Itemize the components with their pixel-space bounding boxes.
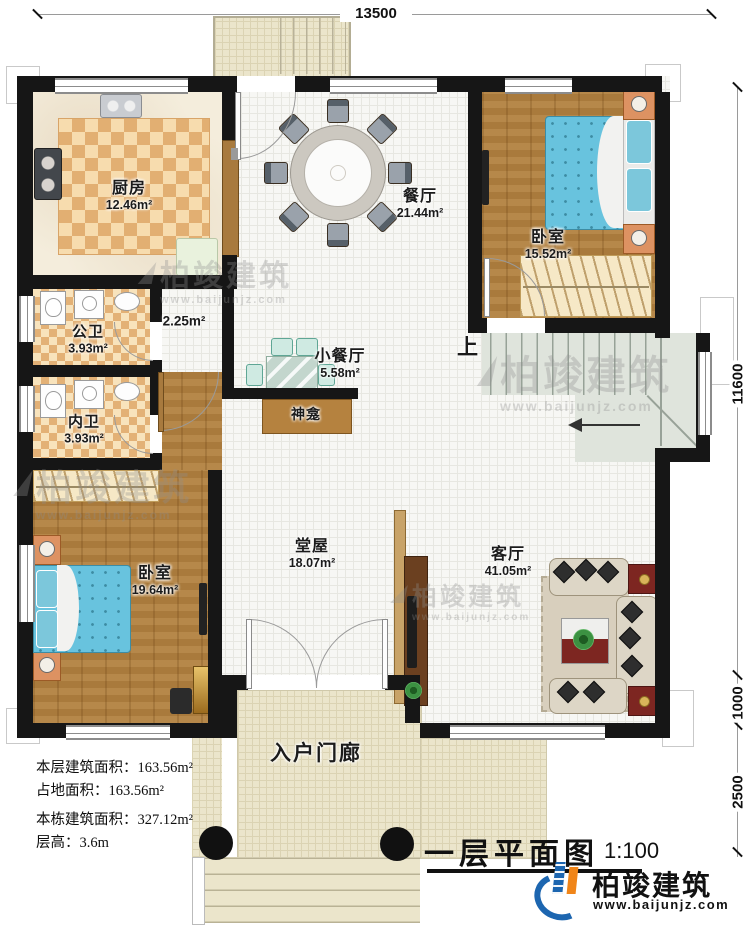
tv-bedroom-top [482, 150, 489, 205]
stair-window [698, 352, 712, 435]
info-land-area: 占地面积：163.56m² [36, 779, 164, 800]
dining-chair [388, 162, 412, 184]
stair-divider-line [660, 336, 662, 446]
wall-dining-bedroom-divider [468, 92, 482, 333]
public-bath-name: 公卫 [68, 325, 108, 342]
kitchen-cabinet [176, 238, 218, 276]
info-floor-area: 本层建筑面积：163.56m² [36, 756, 193, 777]
closet-area: 2.25m² [163, 313, 206, 328]
pillow [36, 570, 58, 608]
entry-door-left-leaf [246, 619, 252, 689]
plant [405, 682, 422, 699]
dining-table-center [330, 165, 346, 181]
kitchen-name: 厨房 [106, 180, 153, 198]
small-dining-name: 小餐厅 [314, 348, 365, 366]
dining-chair [264, 162, 288, 184]
bedroom-bottom-area: 19.64m² [132, 583, 179, 597]
nightstand [33, 535, 61, 565]
porch-name: 入户门廊 [270, 742, 362, 766]
stairs-up-text: 上 [457, 336, 479, 360]
label-closet: 2.25m² [163, 313, 206, 328]
small-dining-chair [246, 364, 263, 386]
private-bath-name: 内卫 [64, 415, 104, 432]
label-bedroom-bottom: 卧室 19.64m² [132, 565, 179, 597]
wall-stair-south [655, 448, 710, 462]
bath-sink [114, 382, 140, 401]
plant [573, 629, 594, 650]
kitchen-stove [34, 148, 62, 200]
small-dining-area: 5.58m² [314, 366, 365, 380]
label-living: 客厅 41.05m² [485, 546, 532, 578]
private-bath-area: 3.93m² [64, 431, 104, 445]
dining-area: 21.44m² [397, 206, 444, 220]
public-bath-window [19, 296, 35, 342]
shrine-name: 神龛 [291, 407, 321, 423]
wall-bath-divider [33, 365, 150, 377]
wall-kitchen-south [17, 275, 237, 289]
dimension-line-right [737, 88, 738, 857]
label-porch: 入户门廊 [270, 742, 362, 766]
wall-closet-east [222, 287, 234, 399]
dining-window [330, 78, 437, 94]
dining-chair [327, 99, 349, 123]
bedroom-bottom-window [19, 545, 35, 622]
brand-logo-icon [534, 858, 586, 912]
bedroom-top-door-gap [487, 318, 545, 333]
wall-east-upper [655, 92, 670, 338]
wall-bedroom-bottom-east [208, 470, 222, 723]
stair-arrow-icon [568, 418, 582, 432]
living-area: 41.05m² [485, 564, 532, 578]
wardrobe [33, 470, 159, 502]
dimension-right-steps-value: 2500 [730, 772, 747, 811]
wall-entry-left-jamb [222, 675, 248, 690]
balcony-door-gap [237, 76, 295, 92]
label-dining: 餐厅 21.44m² [397, 188, 444, 220]
hall-name: 堂屋 [289, 538, 336, 556]
hall-area: 18.07m² [289, 556, 336, 570]
public-bath-area: 3.93m² [68, 341, 108, 355]
living-name: 客厅 [485, 546, 532, 564]
nightstand [623, 90, 655, 120]
living-window [450, 725, 605, 740]
pillow [626, 120, 652, 164]
label-public-bath: 公卫 3.93m² [68, 325, 108, 356]
dimension-right-main-value: 11600 [730, 361, 747, 408]
wall-kitchen-east-lower [222, 255, 237, 275]
dining-name: 餐厅 [397, 188, 444, 206]
stair-direction-line [582, 424, 640, 426]
plan-scale: 1:100 [604, 838, 659, 864]
kitchen-area: 12.46m² [106, 198, 153, 212]
label-hall: 堂屋 18.07m² [289, 538, 336, 570]
pillow [626, 168, 652, 212]
porch-column [199, 826, 233, 860]
label-kitchen: 厨房 12.46m² [106, 180, 153, 212]
corridor-door-leaf [158, 372, 164, 432]
info-floor-height: 层高：3.6m [36, 831, 109, 852]
balcony-slats [280, 18, 346, 74]
bed-sheet-fold [597, 116, 625, 228]
bedroom-bottom-name: 卧室 [132, 565, 179, 583]
washing-machine [74, 380, 104, 409]
entry-steps [203, 857, 420, 923]
steps-side-strip [192, 857, 205, 925]
stereo-cabinet [170, 688, 192, 714]
label-bedroom-top: 卧室 15.52m² [525, 229, 572, 261]
dimension-top-value: 13500 [340, 5, 412, 22]
bedroom-top-door-leaf [484, 258, 490, 317]
nightstand [33, 651, 61, 681]
dimension-right-porch-value: 1000 [730, 683, 747, 722]
kitchen-sink [100, 94, 142, 118]
label-shrine: 神龛 [291, 407, 321, 423]
porch-column [380, 827, 414, 861]
kitchen-window [55, 78, 188, 94]
bedroom-top-name: 卧室 [525, 229, 572, 247]
label-stairs-up: 上 [457, 336, 479, 360]
small-dining-chair [271, 338, 293, 356]
tv-living [407, 596, 417, 668]
bedroom-bottom-south-window [66, 725, 170, 740]
dining-chair [327, 223, 349, 247]
bedroom-top-window [505, 78, 572, 94]
entry-door-right-leaf [382, 619, 388, 689]
washing-machine [74, 290, 104, 319]
toilet [40, 384, 66, 418]
brand-website: www.baijunjz.com [593, 897, 729, 912]
pillow [36, 610, 58, 648]
wall-east-lower [655, 462, 670, 738]
bedroom-top-area: 15.52m² [525, 247, 572, 261]
nightstand [623, 224, 655, 254]
wall-bedroom-bottom-north [17, 458, 162, 470]
label-small-dining: 小餐厅 5.58m² [314, 348, 365, 380]
info-total-area: 本栋建筑面积：327.12m² [36, 808, 193, 829]
toilet [40, 291, 66, 325]
private-bath-window [19, 386, 35, 432]
wall-shrine [230, 388, 358, 399]
wall-entry-connector-left [222, 690, 237, 723]
label-private-bath: 内卫 3.93m² [64, 415, 104, 446]
stair-treads [490, 333, 662, 395]
floor-plan-page: 厨房 12.46m² 餐厅 21.44m² 卧室 15.52m² 公卫 3.93… [0, 0, 750, 929]
balcony-door-handle [231, 148, 238, 160]
bath-sink [114, 292, 140, 311]
display-cabinet [193, 666, 209, 714]
tv-bedroom-bottom [199, 583, 207, 635]
